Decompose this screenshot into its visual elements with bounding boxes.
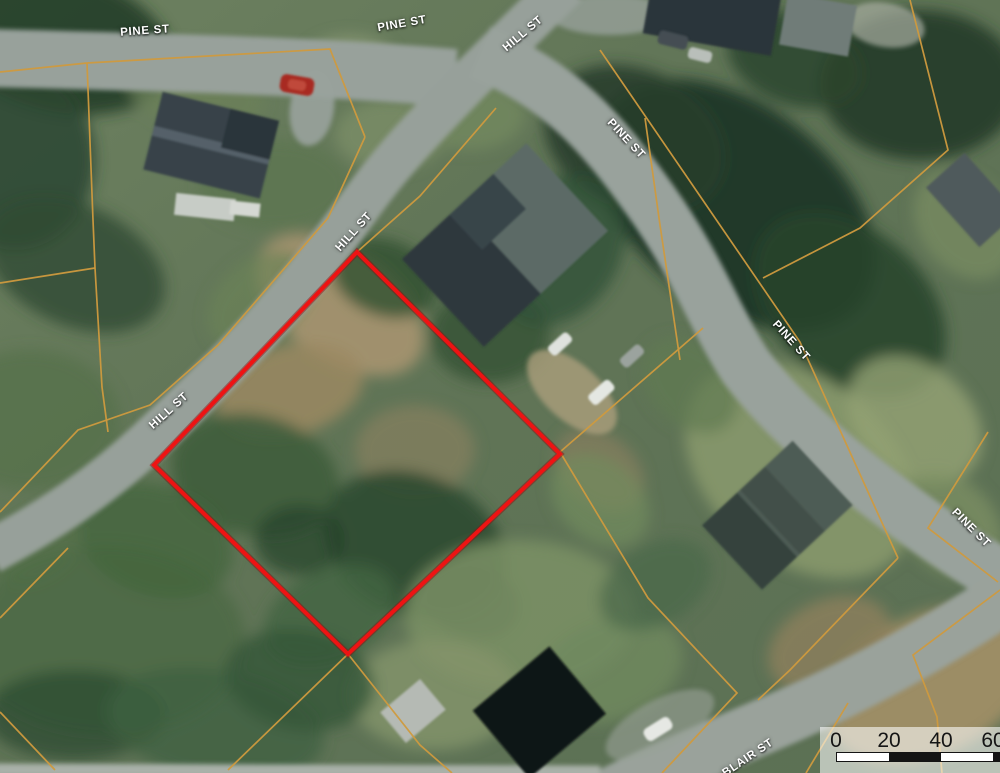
scale-bar xyxy=(836,752,1000,762)
scale-tick-40: 40 xyxy=(929,730,952,751)
satellite-map[interactable]: PINE STPINE STHILL STPINE STHILL STPINE … xyxy=(0,0,1000,773)
scale-tick-60: 60 xyxy=(981,730,1000,751)
scale-bar-segment-1 xyxy=(889,753,941,761)
aerial-imagery xyxy=(0,0,1000,773)
scale-tick-0: 0 xyxy=(830,730,842,751)
scale-tick-20: 20 xyxy=(877,730,900,751)
scale-bar-segment-0 xyxy=(837,753,889,761)
map-scale-bar: 0204060 xyxy=(820,727,1000,773)
scale-bar-segment-3 xyxy=(993,753,1000,761)
scale-bar-segment-2 xyxy=(941,753,993,761)
